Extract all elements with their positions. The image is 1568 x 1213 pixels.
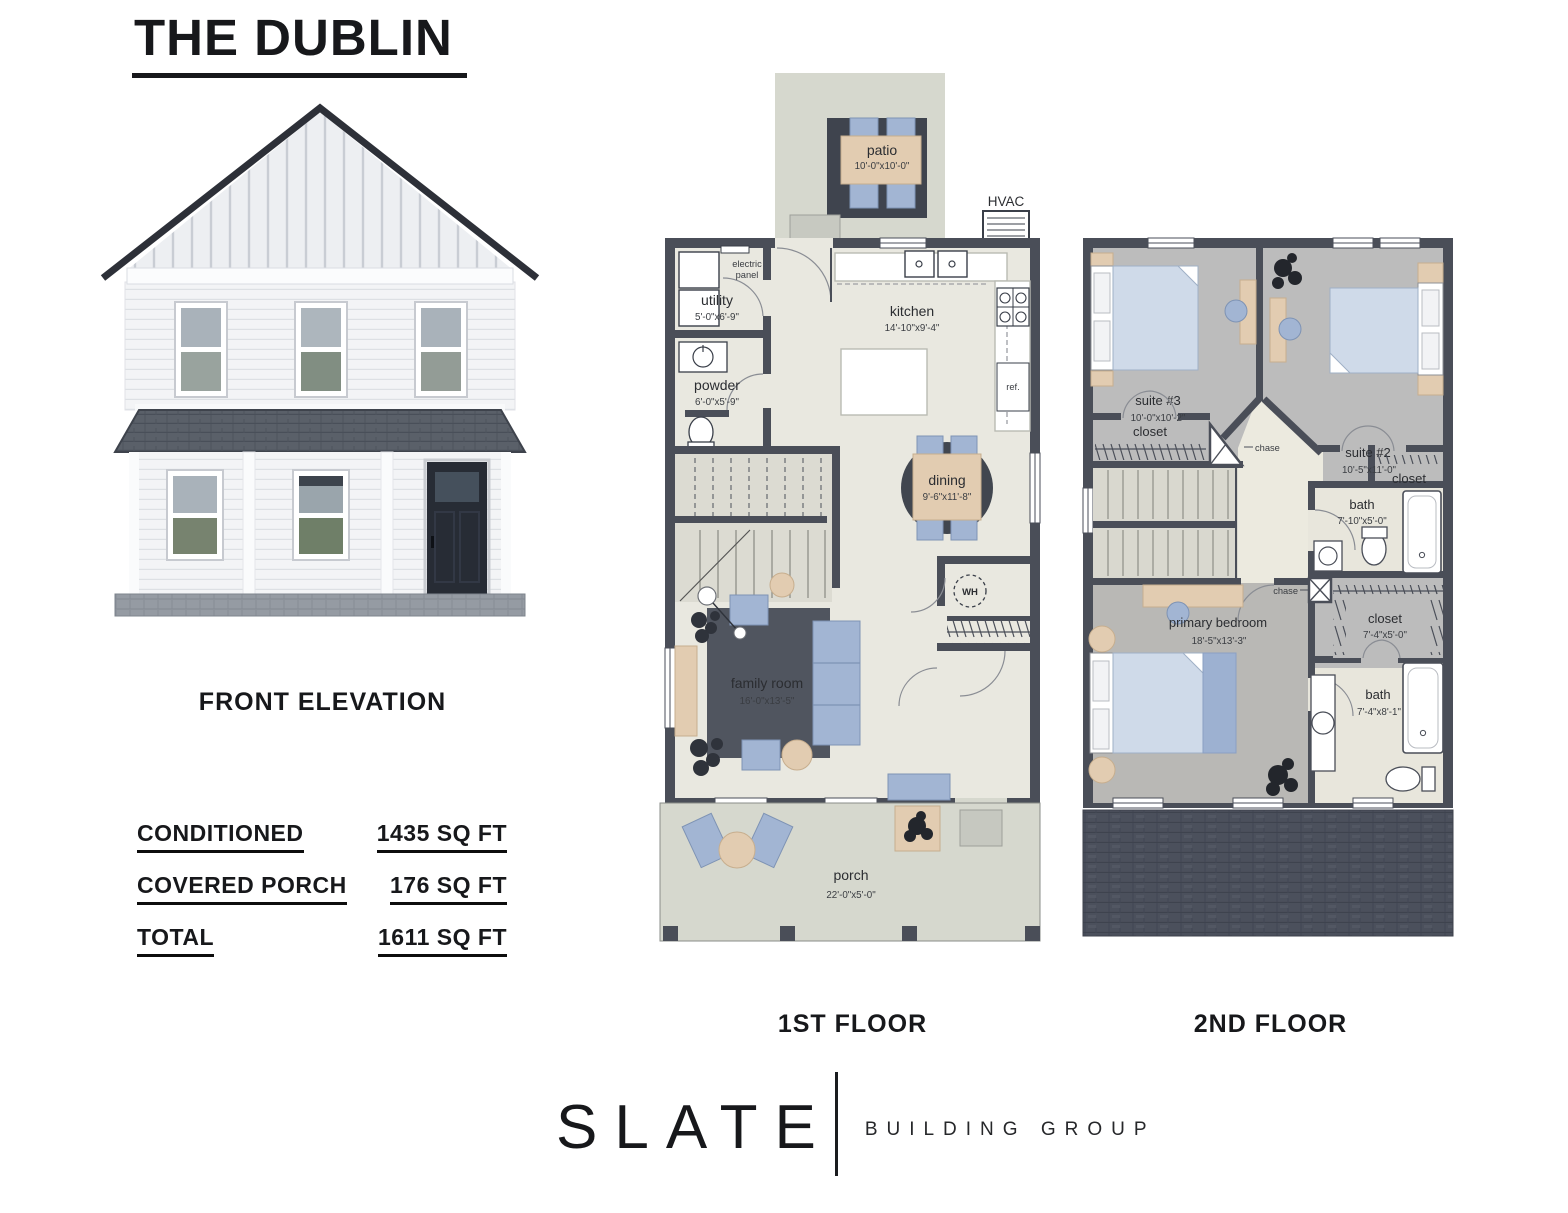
closet-primary: closet 7'-4"x5'-0" — [1333, 583, 1443, 658]
elevation-first-floor — [115, 452, 525, 616]
porch: porch 22'-0"x5'-0" — [660, 803, 1040, 941]
spec-label: TOTAL — [137, 924, 214, 957]
plan-sheet: THE DUBLIN — [0, 0, 1568, 1213]
primary-label: primary bedroom — [1169, 615, 1267, 630]
logo-tagline: BUILDING GROUP — [865, 1107, 1156, 1141]
closet-label: closet — [1392, 471, 1426, 486]
stove — [997, 288, 1029, 326]
kitchen-island — [841, 349, 927, 415]
powder-dims: 6'-0"x5'-9" — [695, 397, 739, 408]
stairs — [670, 446, 840, 602]
spec-row: CONDITIONED 1435 SQ FT — [137, 820, 507, 853]
patio: patio 10'-0"x10'-0" — [775, 73, 945, 241]
first-floor-plan: patio 10'-0"x10'-0" HVAC — [655, 68, 1050, 953]
bench — [888, 774, 950, 800]
family-room-label: family room — [731, 675, 803, 691]
spec-value: 1611 SQ FT — [378, 924, 507, 957]
elevation-porch-roof — [115, 404, 525, 452]
stairs — [1093, 468, 1238, 578]
chase-label: chase — [1273, 586, 1298, 596]
suite3-dims: 10'-0"x10'-2" — [1131, 413, 1186, 424]
upper-window — [295, 302, 347, 397]
second-floor-caption: 2ND FLOOR — [1078, 1010, 1463, 1039]
logo-name: SLATE — [556, 1086, 833, 1163]
front-elevation-render — [95, 100, 550, 625]
electric-panel-label-2: panel — [736, 270, 759, 280]
spec-row: TOTAL 1611 SQ FT — [137, 924, 507, 957]
suite3-label: suite #3 — [1135, 393, 1181, 408]
powder-label: powder — [694, 377, 740, 393]
elevation-second-floor — [125, 282, 515, 410]
lower-window — [293, 470, 349, 560]
kitchen-label: kitchen — [890, 303, 934, 319]
first-floor-caption: 1ST FLOOR — [655, 1010, 1050, 1039]
page-title: THE DUBLIN — [132, 8, 467, 78]
second-floor-plan: suite #3 10'-0"x10'-2" closet chase — [1078, 233, 1463, 945]
spec-value: 1435 SQ FT — [377, 820, 507, 853]
patio-label: patio — [867, 142, 898, 158]
bath-upper-dims: 7'-10"x5'-0" — [1337, 516, 1387, 527]
porch-roof-below — [1083, 810, 1453, 936]
front-door — [425, 460, 489, 594]
upper-window — [175, 302, 227, 397]
spec-value: 176 SQ FT — [390, 872, 507, 905]
wh-label: WH — [962, 587, 978, 598]
bath-primary-dims: 7'-4"x8'-1" — [1357, 707, 1401, 718]
refrigerator: ref. — [997, 363, 1029, 411]
bath-upper-label: bath — [1349, 497, 1374, 512]
upper-window — [415, 302, 467, 397]
spec-label: COVERED PORCH — [137, 872, 347, 905]
patio-dims: 10'-0"x10'-0" — [855, 161, 910, 172]
dining-label: dining — [928, 472, 965, 488]
primary-dims: 18'-5"x13'-3" — [1192, 636, 1247, 647]
closet-primary-label: closet — [1368, 611, 1402, 626]
elevation-gable — [103, 108, 537, 284]
hvac-unit: HVAC — [983, 194, 1029, 241]
chase-label: chase — [1255, 443, 1280, 453]
bath-primary-label: bath — [1365, 687, 1390, 702]
closet-label: closet — [1133, 424, 1167, 439]
ref-label: ref. — [1006, 382, 1019, 392]
porch-label: porch — [833, 867, 868, 883]
hvac-label: HVAC — [988, 194, 1025, 209]
dining-dims: 9'-6"x11'-8" — [923, 492, 972, 503]
logo-divider — [835, 1072, 838, 1176]
utility-dims: 5'-0"x6'-9" — [695, 312, 739, 323]
spec-table: CONDITIONED 1435 SQ FT COVERED PORCH 176… — [137, 820, 507, 976]
family-room-dims: 16'-0"x13'-5" — [740, 696, 795, 707]
spec-row: COVERED PORCH 176 SQ FT — [137, 872, 507, 905]
closet-primary-dims: 7'-4"x5'-0" — [1363, 630, 1407, 641]
spec-label: CONDITIONED — [137, 820, 304, 853]
builder-logo: SLATE BUILDING GROUP — [556, 1072, 1156, 1176]
utility-label: utility — [701, 292, 733, 308]
electric-panel-label-1: electric — [732, 259, 762, 269]
elevation-caption: FRONT ELEVATION — [95, 688, 550, 717]
kitchen-dims: 14'-10"x9'-4" — [885, 323, 940, 334]
lower-window — [167, 470, 223, 560]
porch-dims: 22'-0"x5'-0" — [826, 890, 876, 901]
